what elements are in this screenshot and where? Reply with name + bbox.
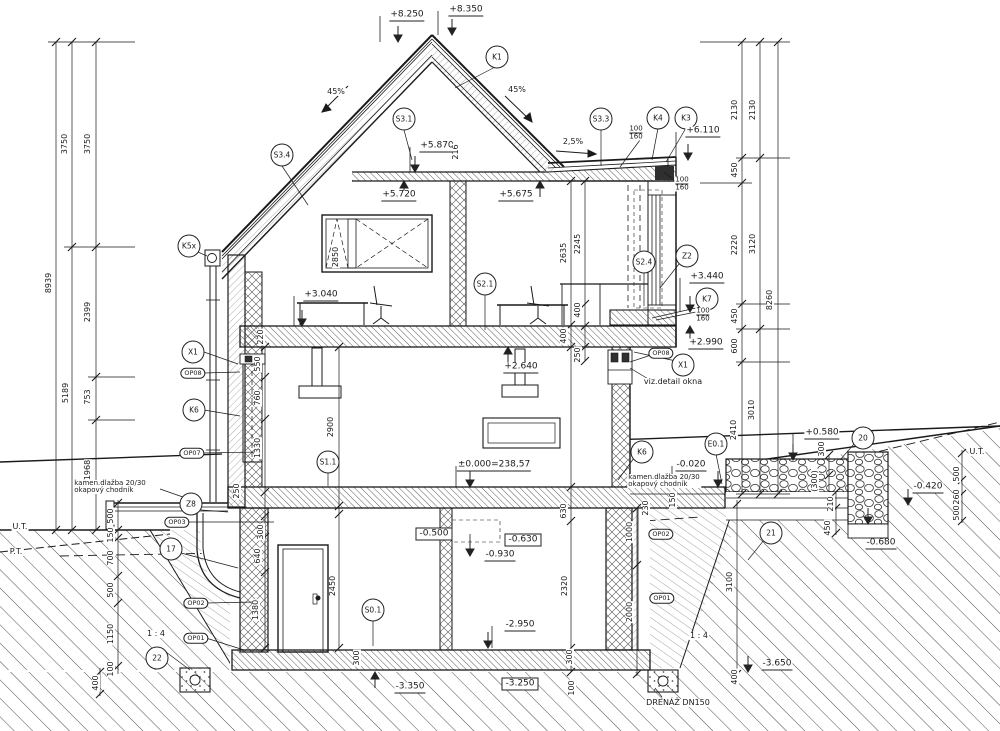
callout-circle: K1 — [486, 46, 509, 69]
note-label: kamen.dlažba 20/30 okapový chodník — [627, 474, 701, 488]
elevation-label: -3.250 — [501, 678, 538, 691]
opening-label: OP08 — [648, 348, 673, 359]
dimension-label: 8939 — [45, 272, 53, 294]
elevation-label: +5.870 — [419, 142, 454, 153]
elevation-label: +5.720 — [381, 191, 416, 202]
dimension-label: 250 — [233, 482, 241, 499]
layer-fraction: 100160 — [674, 177, 689, 192]
dimension-label: 2399 — [84, 301, 92, 323]
dimension-label: 5189 — [62, 382, 70, 404]
callout-circle: S1.1 — [317, 451, 340, 474]
callout-circle: S3.1 — [393, 108, 416, 131]
dimension-label: (300) — [811, 469, 819, 493]
dimension-label: 220 — [257, 328, 265, 345]
opening-label: OP03 — [164, 517, 189, 528]
callout-circle: K5x — [178, 235, 201, 258]
dimension-label: 150 — [107, 526, 115, 543]
fraction-denominator: 160 — [696, 315, 709, 323]
dimension-label: 640 — [254, 547, 262, 564]
note-label: 45% — [326, 88, 346, 96]
callout-circle: E0.1 — [705, 433, 728, 456]
callout-circle: K6 — [631, 441, 654, 464]
elevation-label: -0.500 — [415, 528, 452, 541]
opening-label: OP01 — [649, 593, 674, 604]
note-label: U.T. — [12, 523, 29, 531]
elevation-label: -0.630 — [504, 534, 541, 547]
dimension-label: 2130 — [731, 99, 739, 121]
dimension-label: 3010 — [748, 399, 756, 421]
dimension-label: 2410 — [730, 419, 738, 441]
dimension-label: 216 — [452, 143, 460, 160]
dimension-label: 700 — [107, 549, 115, 566]
elevation-label: -2.950 — [504, 621, 535, 632]
dimension-label: 1330 — [254, 437, 262, 459]
dimension-label: 300 — [818, 440, 826, 457]
dimension-label: 630 — [560, 502, 568, 519]
dimension-label: 150 — [669, 491, 677, 508]
dimension-label: 400 — [92, 674, 100, 691]
elevation-label: -0.930 — [484, 551, 515, 562]
elevation-label: ±0.000=238,57 — [457, 461, 531, 472]
dimension-label: 1968 — [84, 459, 92, 481]
callout-circle: 21 — [760, 522, 783, 545]
opening-label: OP01 — [183, 633, 208, 644]
elevation-label: -0.680 — [865, 539, 896, 550]
dimension-label: 8260 — [766, 289, 774, 311]
elevation-label: +8.250 — [389, 11, 424, 22]
note-label: viz.detail okna — [643, 378, 703, 386]
note-label: DRENÁŽ DN150 — [645, 699, 711, 707]
dimension-label: 1000 — [626, 521, 634, 543]
note-label: P.T. — [9, 548, 24, 556]
dimension-label: 753 — [84, 388, 92, 405]
dimension-label: 300 — [566, 648, 574, 665]
dimension-label: 2900 — [327, 416, 335, 438]
dimension-label: 450 — [731, 307, 739, 324]
callout-circle: S0.1 — [362, 599, 385, 622]
dimension-label: 300 — [353, 649, 361, 666]
dimension-label: 2000 — [626, 601, 634, 623]
callout-circle: 22 — [146, 647, 169, 670]
note-label: kamen.dlažba 20/30 okapový chodník — [73, 480, 147, 494]
elevation-label: +2.640 — [503, 363, 538, 374]
dimension-label: 450 — [824, 519, 832, 536]
dimension-label: 500 — [107, 581, 115, 598]
opening-label: OP02 — [183, 598, 208, 609]
callout-circle: S3.3 — [590, 108, 613, 131]
callout-circle: Z2 — [676, 245, 699, 268]
elevation-label: +5.675 — [498, 191, 533, 202]
dimension-label: 2635 — [560, 242, 568, 264]
elevation-label: -0.420 — [912, 483, 943, 494]
dimension-label: 3120 — [749, 233, 757, 255]
dimension-label: 3750 — [61, 133, 69, 155]
elevation-label: -3.650 — [761, 660, 792, 671]
elevation-label: +3.040 — [303, 291, 338, 302]
dimension-label: 210 — [827, 495, 835, 512]
layer-fraction: 100160 — [695, 308, 710, 323]
opening-label: OP07 — [179, 448, 204, 459]
opening-label: OP08 — [180, 368, 205, 379]
fraction-denominator: 160 — [675, 184, 688, 192]
elevation-label: +3.440 — [689, 273, 724, 284]
dimension-label: 2450 — [329, 575, 337, 597]
callout-circle: S2.4 — [633, 251, 656, 274]
dimension-label: 500 — [107, 507, 115, 524]
dimension-label: 2245 — [574, 233, 582, 255]
dimension-label: 600 — [731, 337, 739, 354]
dimension-label: 2320 — [561, 575, 569, 597]
note-label: 2,5% — [562, 138, 584, 146]
dimension-label: 400 — [560, 327, 568, 344]
elevation-label: +0.580 — [804, 429, 839, 440]
callout-circle: S2.1 — [474, 273, 497, 296]
elevation-label: +8.350 — [448, 6, 483, 17]
note-label: 1 : 4 — [689, 632, 709, 640]
dimension-label: 3750 — [84, 133, 92, 155]
dimension-label: 760 — [254, 389, 262, 406]
callout-circle: S3.4 — [271, 144, 294, 167]
dimension-label: 300 — [257, 523, 265, 540]
note-label: 45% — [507, 86, 527, 94]
callout-circle: K6 — [183, 399, 206, 422]
dimension-label: 2130 — [749, 99, 757, 121]
elevation-label: +6.110 — [685, 127, 720, 138]
dimension-label: 1380 — [252, 599, 260, 621]
architectural-section-sheet: K1S3.1S3.3K4K3S3.4K5xS2.1S2.4Z2K7X1X1K6K… — [0, 0, 1000, 731]
dimension-label: 500 — [953, 504, 961, 521]
dimension-label: 400 — [731, 668, 739, 685]
elevation-label: -0.020 — [675, 461, 706, 472]
dimension-label: 1150 — [107, 623, 115, 645]
dimension-label: 400 — [574, 301, 582, 318]
fraction-denominator: 160 — [629, 133, 642, 141]
callout-circle: 20 — [852, 427, 875, 450]
callout-circle: X1 — [182, 341, 205, 364]
dimension-label: 250 — [574, 346, 582, 363]
dimension-label: 230 — [642, 499, 650, 516]
dimension-label: 260 — [953, 488, 961, 505]
elevation-label: -3.350 — [394, 683, 425, 694]
opening-label: OP02 — [648, 529, 673, 540]
dimension-label: 500 — [953, 465, 961, 482]
dimension-label: 3100 — [726, 571, 734, 593]
callout-circle: X1 — [672, 354, 695, 377]
dimension-label: 550 — [254, 355, 262, 372]
annotation-layer: K1S3.1S3.3K4K3S3.4K5xS2.1S2.4Z2K7X1X1K6K… — [0, 0, 1000, 731]
callout-circle: K4 — [647, 107, 670, 130]
note-label: 1 : 4 — [146, 630, 166, 638]
callout-circle: 17 — [160, 538, 183, 561]
note-label: U.T. — [969, 448, 986, 456]
layer-fraction: 100160 — [628, 126, 643, 141]
dimension-label: 100 — [568, 679, 576, 696]
dimension-label: 450 — [731, 161, 739, 178]
dimension-label: 100 — [107, 660, 115, 677]
elevation-label: +2.990 — [688, 339, 723, 350]
dimension-label: 2850 — [332, 246, 340, 268]
dimension-label: 2220 — [731, 234, 739, 256]
callout-circle: Z8 — [180, 493, 203, 516]
